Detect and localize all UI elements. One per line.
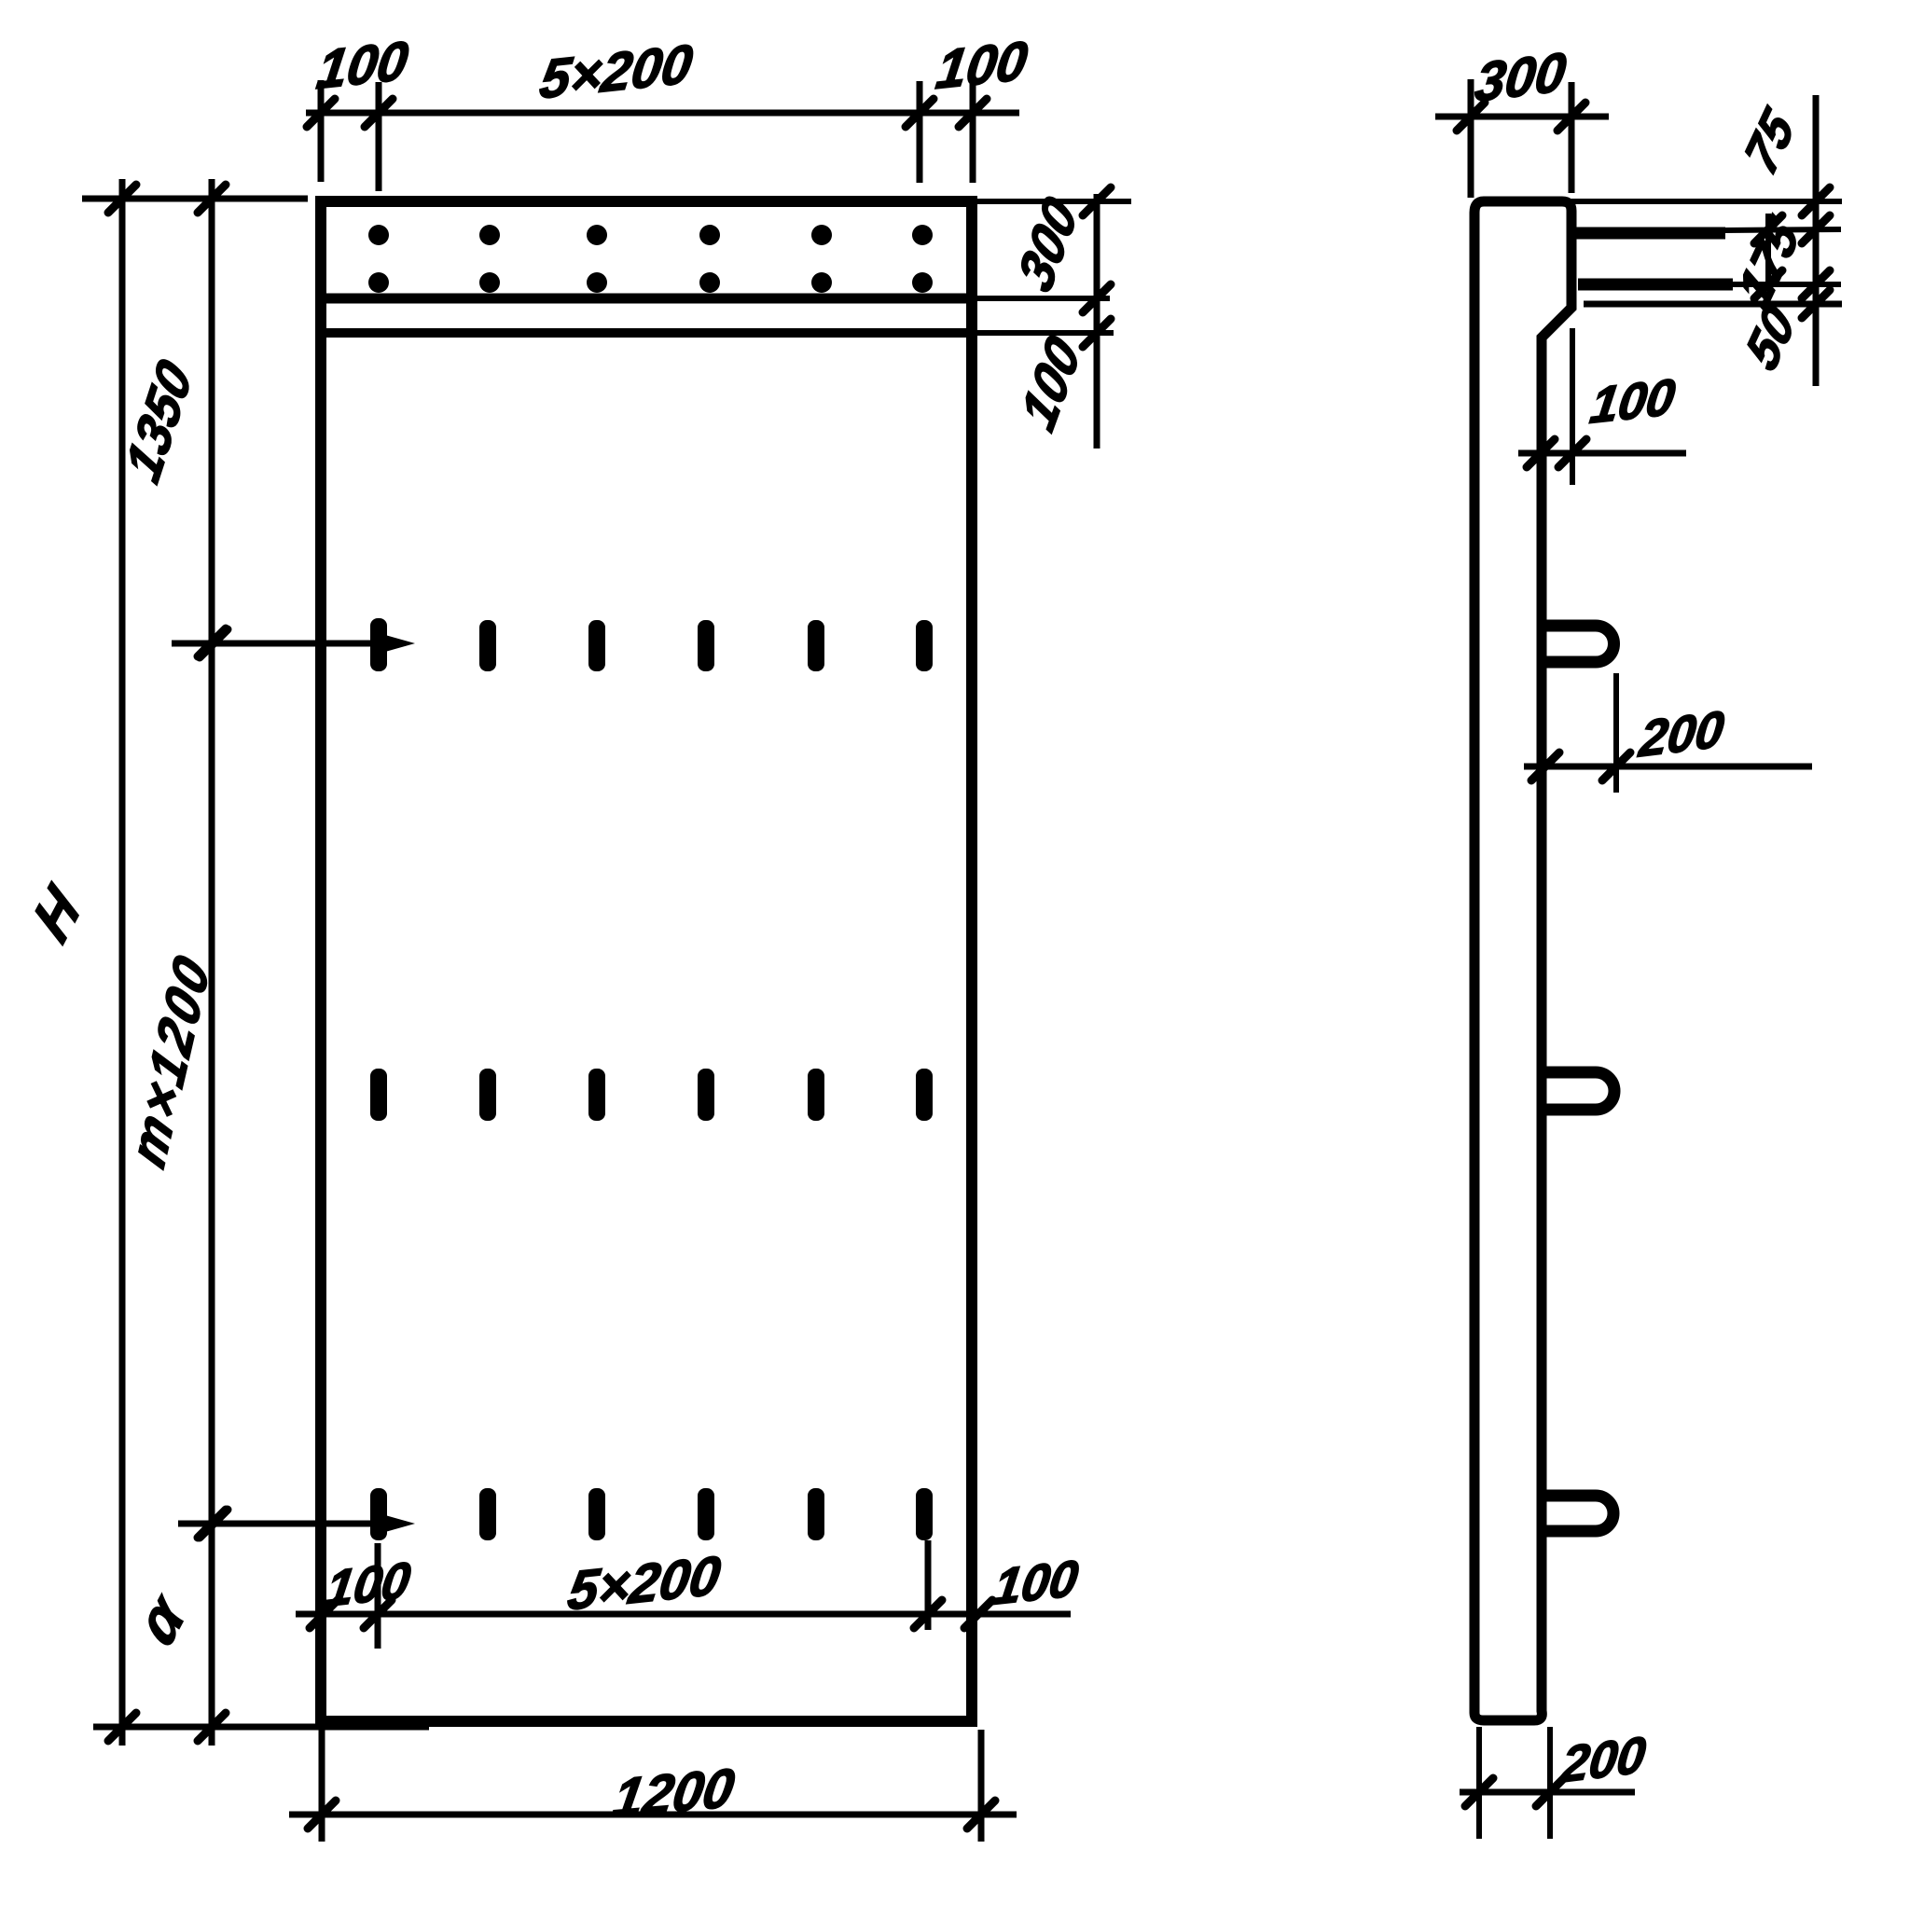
svg-text:100: 100 <box>313 31 412 101</box>
svg-text:100: 100 <box>990 1549 1082 1616</box>
svg-text:100: 100 <box>1587 367 1679 435</box>
svg-text:200: 200 <box>1557 1725 1649 1794</box>
svg-text:300: 300 <box>1472 42 1569 114</box>
svg-text:100: 100 <box>323 1551 414 1618</box>
svg-text:1200: 1200 <box>609 1758 739 1828</box>
svg-text:200: 200 <box>1636 699 1727 768</box>
svg-text:100: 100 <box>933 31 1031 101</box>
